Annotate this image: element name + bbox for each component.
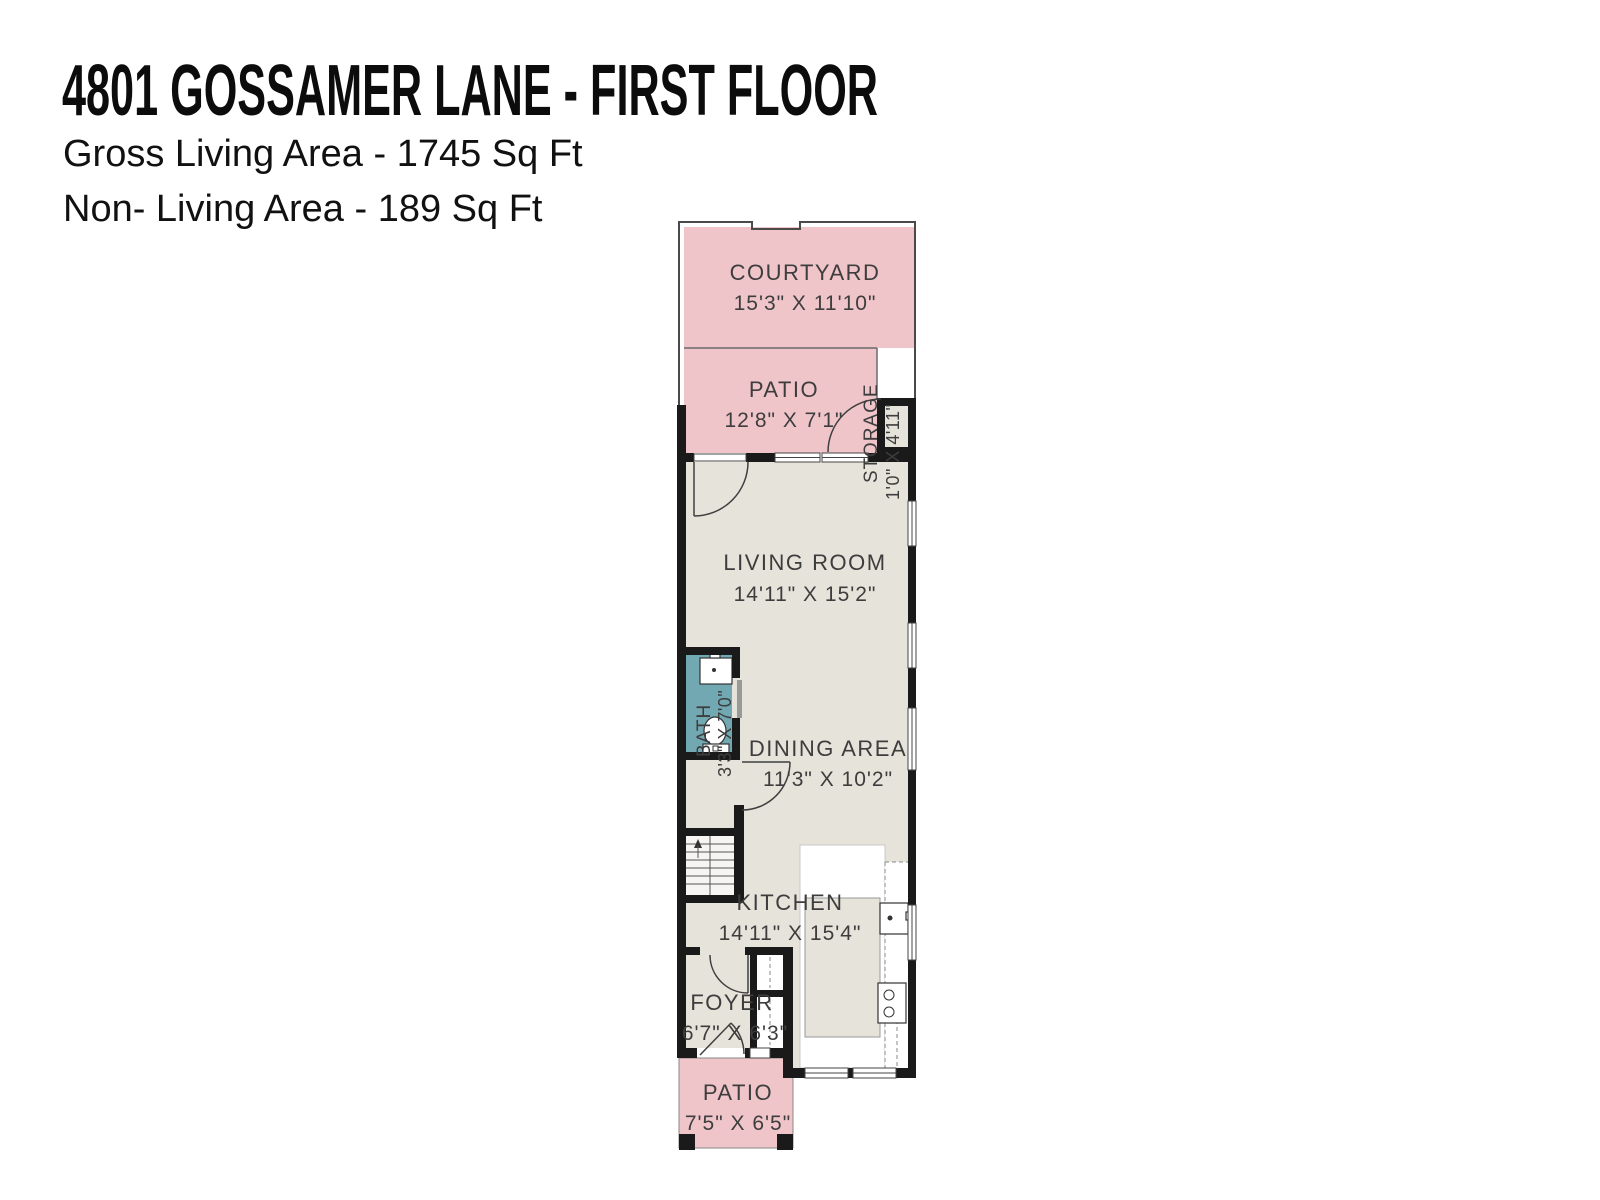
wall-segment (677, 1048, 697, 1058)
floor-plan-canvas: 4801 GOSSAMER LANE - FIRST FLOOR Gross L… (0, 0, 1600, 1200)
non-living-area-text: Non- Living Area - 189 Sq Ft (63, 188, 543, 230)
bath-sink (700, 658, 732, 684)
wall-segment (677, 647, 740, 655)
bath-label: BATH (694, 704, 715, 757)
dining-area-dim: 11'3" X 10'2" (763, 768, 893, 791)
page-title: 4801 GOSSAMER LANE - FIRST FLOOR (62, 51, 878, 131)
wall-segment (848, 1068, 853, 1078)
wall-segment (908, 398, 916, 501)
foyer-label: FOYER (690, 990, 773, 1015)
bath-dim: 3'3" X 7'0" (715, 690, 735, 777)
wall-segment (745, 1048, 750, 1058)
living-room-label: LIVING ROOM (723, 550, 886, 575)
patio-upper-dim: 12'8" X 7'1" (725, 409, 844, 432)
patio-lower-dim: 7'5" X 6'5" (685, 1112, 791, 1135)
courtyard-dim: 15'3" X 11'10" (734, 292, 877, 315)
wall-segment (732, 647, 740, 678)
storage-label: STORAGE (861, 383, 882, 483)
bath-pocket-door (737, 680, 742, 718)
patio-lower-label: PATIO (703, 1080, 773, 1105)
wall-segment (908, 668, 916, 708)
wall-segment (908, 546, 916, 623)
patio-upper-label: PATIO (749, 377, 819, 402)
wall-segment (770, 1048, 793, 1058)
foyer-dim: 6'7" X 6'3" (682, 1022, 788, 1045)
dining-area-label: DINING AREA (749, 736, 907, 761)
courtyard-label: COURTYARD (730, 260, 881, 285)
kitchen-sink-drain (888, 916, 893, 921)
storage-dim: 1'0" X 4'11" (883, 404, 903, 500)
kitchen-island (805, 898, 880, 1037)
stove (878, 983, 906, 1023)
stove-burner (884, 1007, 894, 1017)
door-threshold (694, 454, 746, 461)
kitchen-fixtures (800, 845, 915, 1068)
patio-post (777, 1134, 793, 1150)
kitchen-label: KITCHEN (736, 890, 843, 915)
stairs (686, 836, 734, 895)
wall-segment (677, 895, 744, 903)
wall-segment (677, 405, 686, 1058)
header: 4801 GOSSAMER LANE - FIRST FLOOR Gross L… (62, 51, 878, 230)
courtyard-area (684, 227, 914, 348)
wall-segment (908, 770, 916, 905)
gross-living-area-text: Gross Living Area - 1745 Sq Ft (63, 133, 583, 175)
wall-segment (783, 947, 793, 1078)
kitchen-dim: 14'11" X 15'4" (719, 922, 862, 945)
wall-segment (908, 960, 916, 1078)
wall-segment (677, 828, 744, 836)
patio-post (679, 1134, 695, 1150)
wall-segment (746, 453, 775, 462)
wall-segment (677, 947, 700, 955)
window (750, 1048, 770, 1058)
stove-burner (884, 990, 894, 1000)
floor-plan-page: 4801 GOSSAMER LANE - FIRST FLOOR Gross L… (0, 0, 1600, 1200)
wall-segment (896, 1068, 916, 1078)
bath-sink-drain (712, 668, 716, 672)
wall-segment (783, 1068, 805, 1078)
living-room-dim: 14'11" X 15'2" (734, 583, 877, 606)
wall-segment (677, 453, 694, 462)
kitchen-sink (880, 903, 908, 934)
